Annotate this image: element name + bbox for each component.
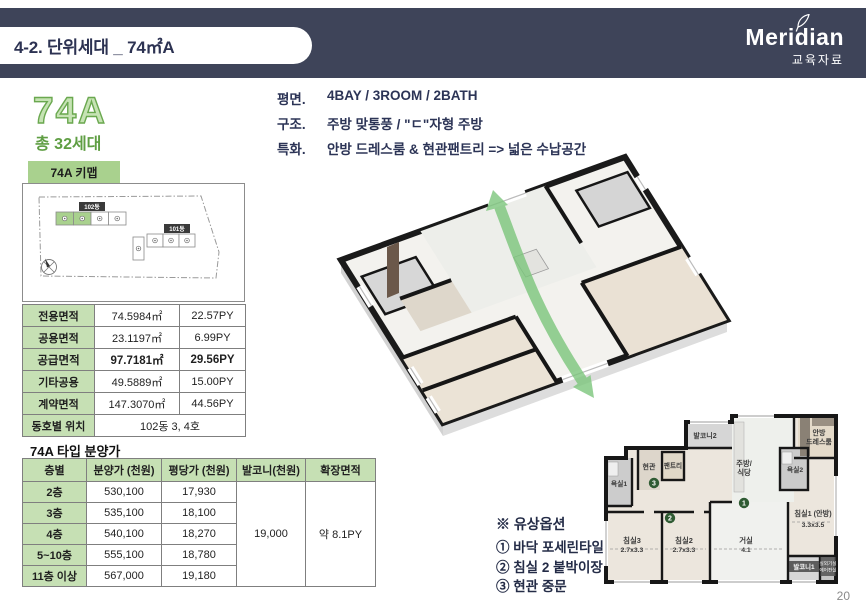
unit-households: 총 32세대 <box>35 130 101 154</box>
price-value: 540,100 <box>87 524 162 545</box>
price-perpy: 17,930 <box>162 482 237 503</box>
room-label-balcony1: 발코니1 <box>793 562 815 571</box>
area-sqm: 74.5984㎡ <box>95 305 180 327</box>
floorplan-2d-canvas: 발코니2 현관 팬트리 욕실1 주방/ 식당 안방 드레스룸 욕실2 침실3 2… <box>598 406 862 602</box>
paid-options: ※ 유상옵션 ① 바닥 포세린타일 ② 침실 2 붙박이장 ③ 현관 중문 <box>496 514 604 597</box>
area-py: 6.99PY <box>180 327 246 349</box>
slide: 4-2. 단위세대 _ 74㎡A Meridian 교육자료 74A 총 32세… <box>0 0 866 612</box>
area-table: 전용면적 74.5984㎡ 22.57PY 공용면적 23.1197㎡ 6.99… <box>22 304 246 437</box>
floorplan-2d: 발코니2 현관 팬트리 욕실1 주방/ 식당 안방 드레스룸 욕실2 침실3 2… <box>598 406 862 602</box>
area-sqm: 23.1197㎡ <box>95 327 180 349</box>
floorplan-3d <box>295 145 740 449</box>
brand-logo: Meridian <box>745 18 844 50</box>
room-dim-living: 4.1 <box>741 547 751 554</box>
price-floor: 4층 <box>23 524 87 545</box>
keymap-building-101: 101동 <box>133 224 195 260</box>
price-perpy: 18,100 <box>162 503 237 524</box>
title-pill: 4-2. 단위세대 _ 74㎡A <box>0 27 312 64</box>
room-label-bath1: 욕실1 <box>611 479 628 488</box>
area-location-row: 동호별 위치 102동 3, 4호 <box>23 415 246 437</box>
price-value: 535,100 <box>87 503 162 524</box>
room-label-entrance: 현관 <box>643 462 656 471</box>
room-label-dress-2: 드레스룸 <box>806 437 832 446</box>
price-perpy: 19,180 <box>162 566 237 587</box>
option-item: ② 침실 2 붙박이장 <box>496 558 604 578</box>
room-label-kitchen-1: 주방/ <box>736 459 752 468</box>
paid-options-title: ※ 유상옵션 <box>496 514 604 534</box>
room-label-balcony2: 발코니2 <box>693 431 716 440</box>
area-py: 15.00PY <box>180 371 246 393</box>
price-header-floor: 층별 <box>23 459 87 482</box>
area-sqm: 97.7181㎡ <box>95 349 180 371</box>
spec-row: 평면. 4BAY / 3ROOM / 2BATH <box>277 88 586 108</box>
room-dim-bedroom3: 2.7x3.3 <box>621 547 644 554</box>
price-floor: 3층 <box>23 503 87 524</box>
price-table-wrap: 층별 분양가 (천원) 평당가 (천원) 발코니(천원) 확장면적 2층 530… <box>22 458 376 587</box>
area-location-value: 102동 3, 4호 <box>95 415 246 437</box>
page-title: 4-2. 단위세대 _ 74㎡A <box>14 33 174 58</box>
option-marker-2: 2 <box>668 516 672 523</box>
area-table-wrap: 전용면적 74.5984㎡ 22.57PY 공용면적 23.1197㎡ 6.99… <box>22 304 246 437</box>
keymap-building-102: 102동 <box>56 202 126 225</box>
room-dim-bedroom1: 3.3x3.5 <box>802 522 825 529</box>
floorplan-3d-canvas <box>295 145 740 449</box>
area-py: 44.56PY <box>180 393 246 415</box>
brand-block: Meridian 교육자료 <box>745 18 844 68</box>
room-label-bedroom2: 침실2 <box>675 536 693 545</box>
price-floor: 5~10층 <box>23 545 87 566</box>
room-label-dress-1: 안방 <box>813 428 826 437</box>
spec-label: 평면. <box>277 88 327 108</box>
brand-subtitle: 교육자료 <box>745 51 844 68</box>
room-label-bath2: 욕실2 <box>787 465 804 474</box>
price-value: 555,100 <box>87 545 162 566</box>
area-sqm: 49.5889㎡ <box>95 371 180 393</box>
room-label-ac-2: 에어컨실 <box>820 567 837 574</box>
keymap-box: 102동 101동 <box>22 183 245 302</box>
room-label-living: 거실 <box>739 536 753 545</box>
area-label: 공용면적 <box>23 327 95 349</box>
area-label: 공급면적 <box>23 349 95 371</box>
price-header-price: 분양가 (천원) <box>87 459 162 482</box>
keymap-label-101: 101동 <box>169 225 185 233</box>
keymap-tab: 74A 키맵 <box>28 161 120 183</box>
price-floor: 2층 <box>23 482 87 503</box>
price-header-perpy: 평당가 (천원) <box>162 459 237 482</box>
room-label-kitchen-2: 식당 <box>737 468 751 477</box>
room-label-ac-1: 실외기실 <box>820 560 837 567</box>
room-label-bedroom3: 침실3 <box>623 536 641 545</box>
area-sqm: 147.3070㎡ <box>95 393 180 415</box>
area-label: 전용면적 <box>23 305 95 327</box>
option-item: ③ 현관 중문 <box>496 577 604 597</box>
room-label-bedroom1: 침실1 (안방) <box>794 509 832 518</box>
price-table: 층별 분양가 (천원) 평당가 (천원) 발코니(천원) 확장면적 2층 530… <box>22 458 376 587</box>
price-value: 530,100 <box>87 482 162 503</box>
price-value: 567,000 <box>87 566 162 587</box>
area-py: 22.57PY <box>180 305 246 327</box>
area-location-label: 동호별 위치 <box>23 415 95 437</box>
area-row: 계약면적 147.3070㎡ 44.56PY <box>23 393 246 415</box>
keymap-canvas: 102동 101동 <box>23 184 244 301</box>
area-py: 29.56PY <box>180 349 246 371</box>
keymap-label-102: 102동 <box>84 203 100 211</box>
compass-icon <box>42 259 57 275</box>
price-balcony-value: 19,000 <box>237 482 306 587</box>
area-label: 계약면적 <box>23 393 95 415</box>
spec-label: 구조. <box>277 113 327 133</box>
price-floor: 11층 이상 <box>23 566 87 587</box>
option-marker-1: 1 <box>742 501 746 508</box>
spec-row: 구조. 주방 맞통풍 / "ㄷ"자형 주방 <box>277 113 586 133</box>
area-row: 공급면적 97.7181㎡ 29.56PY <box>23 349 246 371</box>
price-extension-value: 약 8.1PY <box>306 482 376 587</box>
page-number: 20 <box>837 589 850 603</box>
room-label-pantry: 팬트리 <box>664 461 682 470</box>
leaf-icon <box>795 14 811 32</box>
price-perpy: 18,270 <box>162 524 237 545</box>
spec-value: 주방 맞통풍 / "ㄷ"자형 주방 <box>327 113 483 133</box>
spec-value: 4BAY / 3ROOM / 2BATH <box>327 88 478 108</box>
option-marker-3: 3 <box>652 481 656 488</box>
price-header-extension: 확장면적 <box>306 459 376 482</box>
price-perpy: 18,780 <box>162 545 237 566</box>
area-row: 전용면적 74.5984㎡ 22.57PY <box>23 305 246 327</box>
price-header-row: 층별 분양가 (천원) 평당가 (천원) 발코니(천원) 확장면적 <box>23 459 376 482</box>
area-row: 공용면적 23.1197㎡ 6.99PY <box>23 327 246 349</box>
unit-name: 74A <box>33 90 107 132</box>
room-dim-bedroom2: 2.7x3.3 <box>673 547 696 554</box>
price-header-balcony: 발코니(천원) <box>237 459 306 482</box>
option-item: ① 바닥 포세린타일 <box>496 538 604 558</box>
price-row: 2층 530,100 17,930 19,000 약 8.1PY <box>23 482 376 503</box>
area-label: 기타공용 <box>23 371 95 393</box>
area-row: 기타공용 49.5889㎡ 15.00PY <box>23 371 246 393</box>
